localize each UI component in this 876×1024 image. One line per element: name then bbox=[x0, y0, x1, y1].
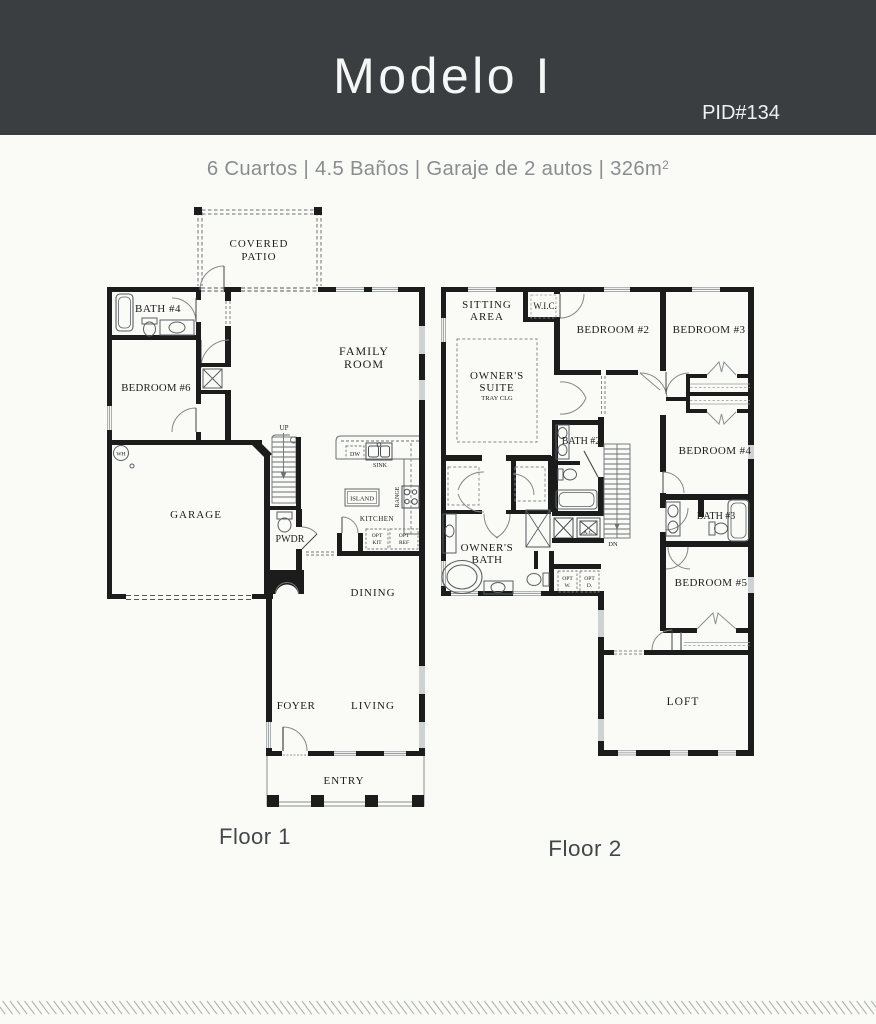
svg-text:OWNER'S: OWNER'S bbox=[470, 370, 524, 382]
svg-text:6 Cuartos | 4.5 Baños | Garaje: 6 Cuartos | 4.5 Baños | Garaje de 2 auto… bbox=[207, 158, 669, 180]
svg-text:KITCHEN: KITCHEN bbox=[360, 515, 394, 523]
svg-text:DINING: DINING bbox=[350, 587, 395, 599]
svg-text:Floor 1: Floor 1 bbox=[219, 824, 291, 849]
svg-text:ROOM: ROOM bbox=[344, 357, 384, 371]
svg-text:ENTRY: ENTRY bbox=[323, 775, 364, 787]
svg-text:D.: D. bbox=[587, 583, 593, 589]
svg-text:BATH #4: BATH #4 bbox=[135, 303, 181, 315]
svg-text:W.I.C.: W.I.C. bbox=[533, 301, 556, 311]
svg-text:OPT: OPT bbox=[562, 576, 573, 582]
svg-text:BATH #2: BATH #2 bbox=[562, 436, 601, 447]
svg-text:WH: WH bbox=[116, 452, 125, 458]
svg-text:A.C.: A.C. bbox=[583, 530, 594, 536]
svg-text:REF: REF bbox=[399, 540, 409, 546]
svg-text:BEDROOM #5: BEDROOM #5 bbox=[675, 577, 748, 589]
svg-text:BEDROOM #4: BEDROOM #4 bbox=[679, 445, 752, 457]
svg-text:OPT: OPT bbox=[399, 533, 410, 539]
svg-text:Modelo I: Modelo I bbox=[333, 48, 553, 104]
svg-text:BEDROOM #2: BEDROOM #2 bbox=[577, 324, 650, 336]
svg-text:GARAGE: GARAGE bbox=[170, 509, 222, 521]
svg-text:FAMILY: FAMILY bbox=[339, 344, 389, 358]
svg-text:Floor 2: Floor 2 bbox=[548, 836, 622, 861]
svg-text:BATH: BATH bbox=[471, 554, 502, 566]
svg-text:BEDROOM #3: BEDROOM #3 bbox=[673, 324, 746, 336]
svg-text:RANGE: RANGE bbox=[395, 486, 401, 507]
svg-text:PATIO: PATIO bbox=[241, 251, 276, 263]
svg-text:AREA: AREA bbox=[470, 311, 504, 323]
svg-text:DW: DW bbox=[350, 452, 360, 458]
svg-text:LIVING: LIVING bbox=[351, 700, 395, 712]
svg-text:KIT: KIT bbox=[372, 540, 382, 546]
svg-text:BEDROOM #6: BEDROOM #6 bbox=[121, 382, 191, 394]
svg-text:FOYER: FOYER bbox=[277, 700, 316, 712]
svg-text:PWDR: PWDR bbox=[276, 534, 305, 545]
svg-text:OPT: OPT bbox=[372, 533, 383, 539]
svg-text:TRAY CLG: TRAY CLG bbox=[481, 395, 513, 402]
svg-text:SITTING: SITTING bbox=[462, 299, 512, 311]
svg-text:ISLAND: ISLAND bbox=[350, 496, 374, 503]
svg-text:BATH #3: BATH #3 bbox=[697, 511, 736, 522]
svg-text:DN: DN bbox=[608, 541, 618, 548]
svg-text:LOFT: LOFT bbox=[667, 696, 700, 708]
svg-text:SINK: SINK bbox=[373, 463, 388, 469]
svg-text:W.: W. bbox=[564, 583, 571, 589]
svg-text:SUITE: SUITE bbox=[479, 382, 514, 394]
svg-text:OPT: OPT bbox=[584, 576, 595, 582]
svg-text:PID#134: PID#134 bbox=[702, 102, 780, 124]
svg-text:COVERED: COVERED bbox=[230, 238, 289, 250]
svg-text:UP: UP bbox=[280, 424, 289, 432]
svg-text:OWNER'S: OWNER'S bbox=[461, 542, 514, 554]
